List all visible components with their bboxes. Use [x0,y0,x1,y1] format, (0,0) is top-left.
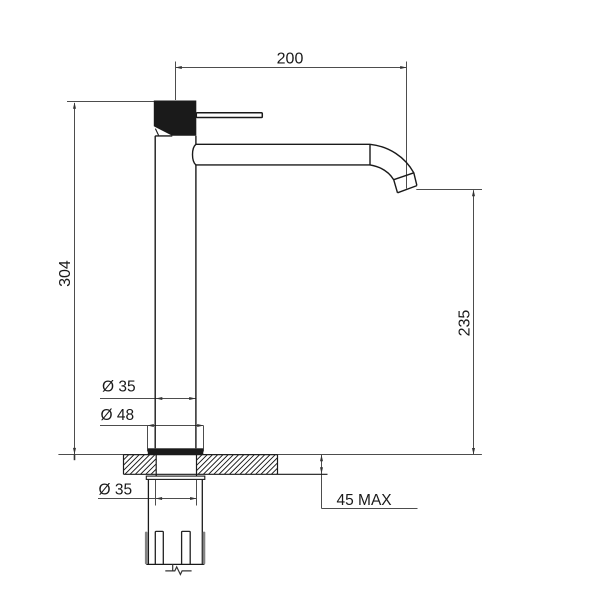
svg-text:Ø 48: Ø 48 [101,407,135,424]
svg-text:Ø 35: Ø 35 [102,379,136,396]
svg-text:Ø 35: Ø 35 [99,482,133,499]
svg-text:235: 235 [457,310,474,337]
svg-text:45 MAX: 45 MAX [337,492,393,509]
svg-text:200: 200 [277,51,304,68]
svg-text:304: 304 [57,260,74,287]
